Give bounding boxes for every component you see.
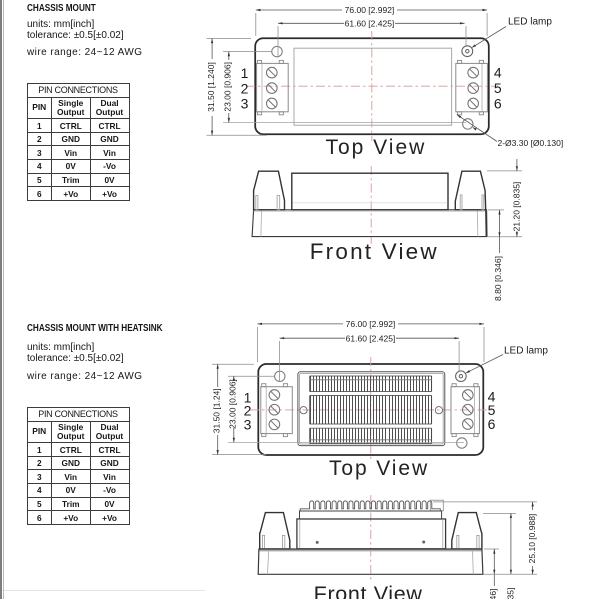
svg-text:61.60 [2.425]: 61.60 [2.425] xyxy=(346,333,396,343)
svg-text:Front View: Front View xyxy=(310,239,439,264)
svg-text:21.20 [0.835]: 21.20 [0.835] xyxy=(512,182,522,232)
svg-text:6: 6 xyxy=(488,416,496,432)
svg-text:3: 3 xyxy=(244,417,252,433)
svg-text:8.80 [0.346]: 8.80 [0.346] xyxy=(488,589,498,599)
svg-text:2: 2 xyxy=(241,80,249,96)
svg-text:23.00 [0.906]: 23.00 [0.906] xyxy=(228,379,238,429)
svg-text:31.50 [1.24]: 31.50 [1.24] xyxy=(212,388,222,433)
svg-text:25.10 [0.988]: 25.10 [0.988] xyxy=(527,514,537,564)
svg-text:21.20 [0.835]: 21.20 [0.835] xyxy=(505,588,515,599)
svg-text:1: 1 xyxy=(241,65,249,81)
svg-text:8.80 [0.346]: 8.80 [0.346] xyxy=(493,256,503,301)
svg-text:2-Ø3.30 [Ø0.130]: 2-Ø3.30 [Ø0.130] xyxy=(498,138,564,148)
svg-text:6: 6 xyxy=(494,96,502,112)
svg-text:76.00 [2.992]: 76.00 [2.992] xyxy=(346,319,396,329)
svg-text:Top View: Top View xyxy=(329,457,429,480)
svg-text:LED lamp: LED lamp xyxy=(504,346,548,357)
svg-text:Top View: Top View xyxy=(325,136,426,159)
svg-text:4: 4 xyxy=(494,65,502,81)
svg-text:LED lamp: LED lamp xyxy=(508,17,552,28)
svg-text:3: 3 xyxy=(241,96,249,112)
svg-text:5: 5 xyxy=(494,80,502,96)
svg-text:23.00 [0.906]: 23.00 [0.906] xyxy=(223,62,233,112)
svg-text:76.00 [2.992]: 76.00 [2.992] xyxy=(345,5,395,15)
svg-text:Front View: Front View xyxy=(314,582,423,599)
svg-text:61.60 [2.425]: 61.60 [2.425] xyxy=(345,18,395,28)
svg-text:31.50 [1.240]: 31.50 [1.240] xyxy=(206,62,216,112)
